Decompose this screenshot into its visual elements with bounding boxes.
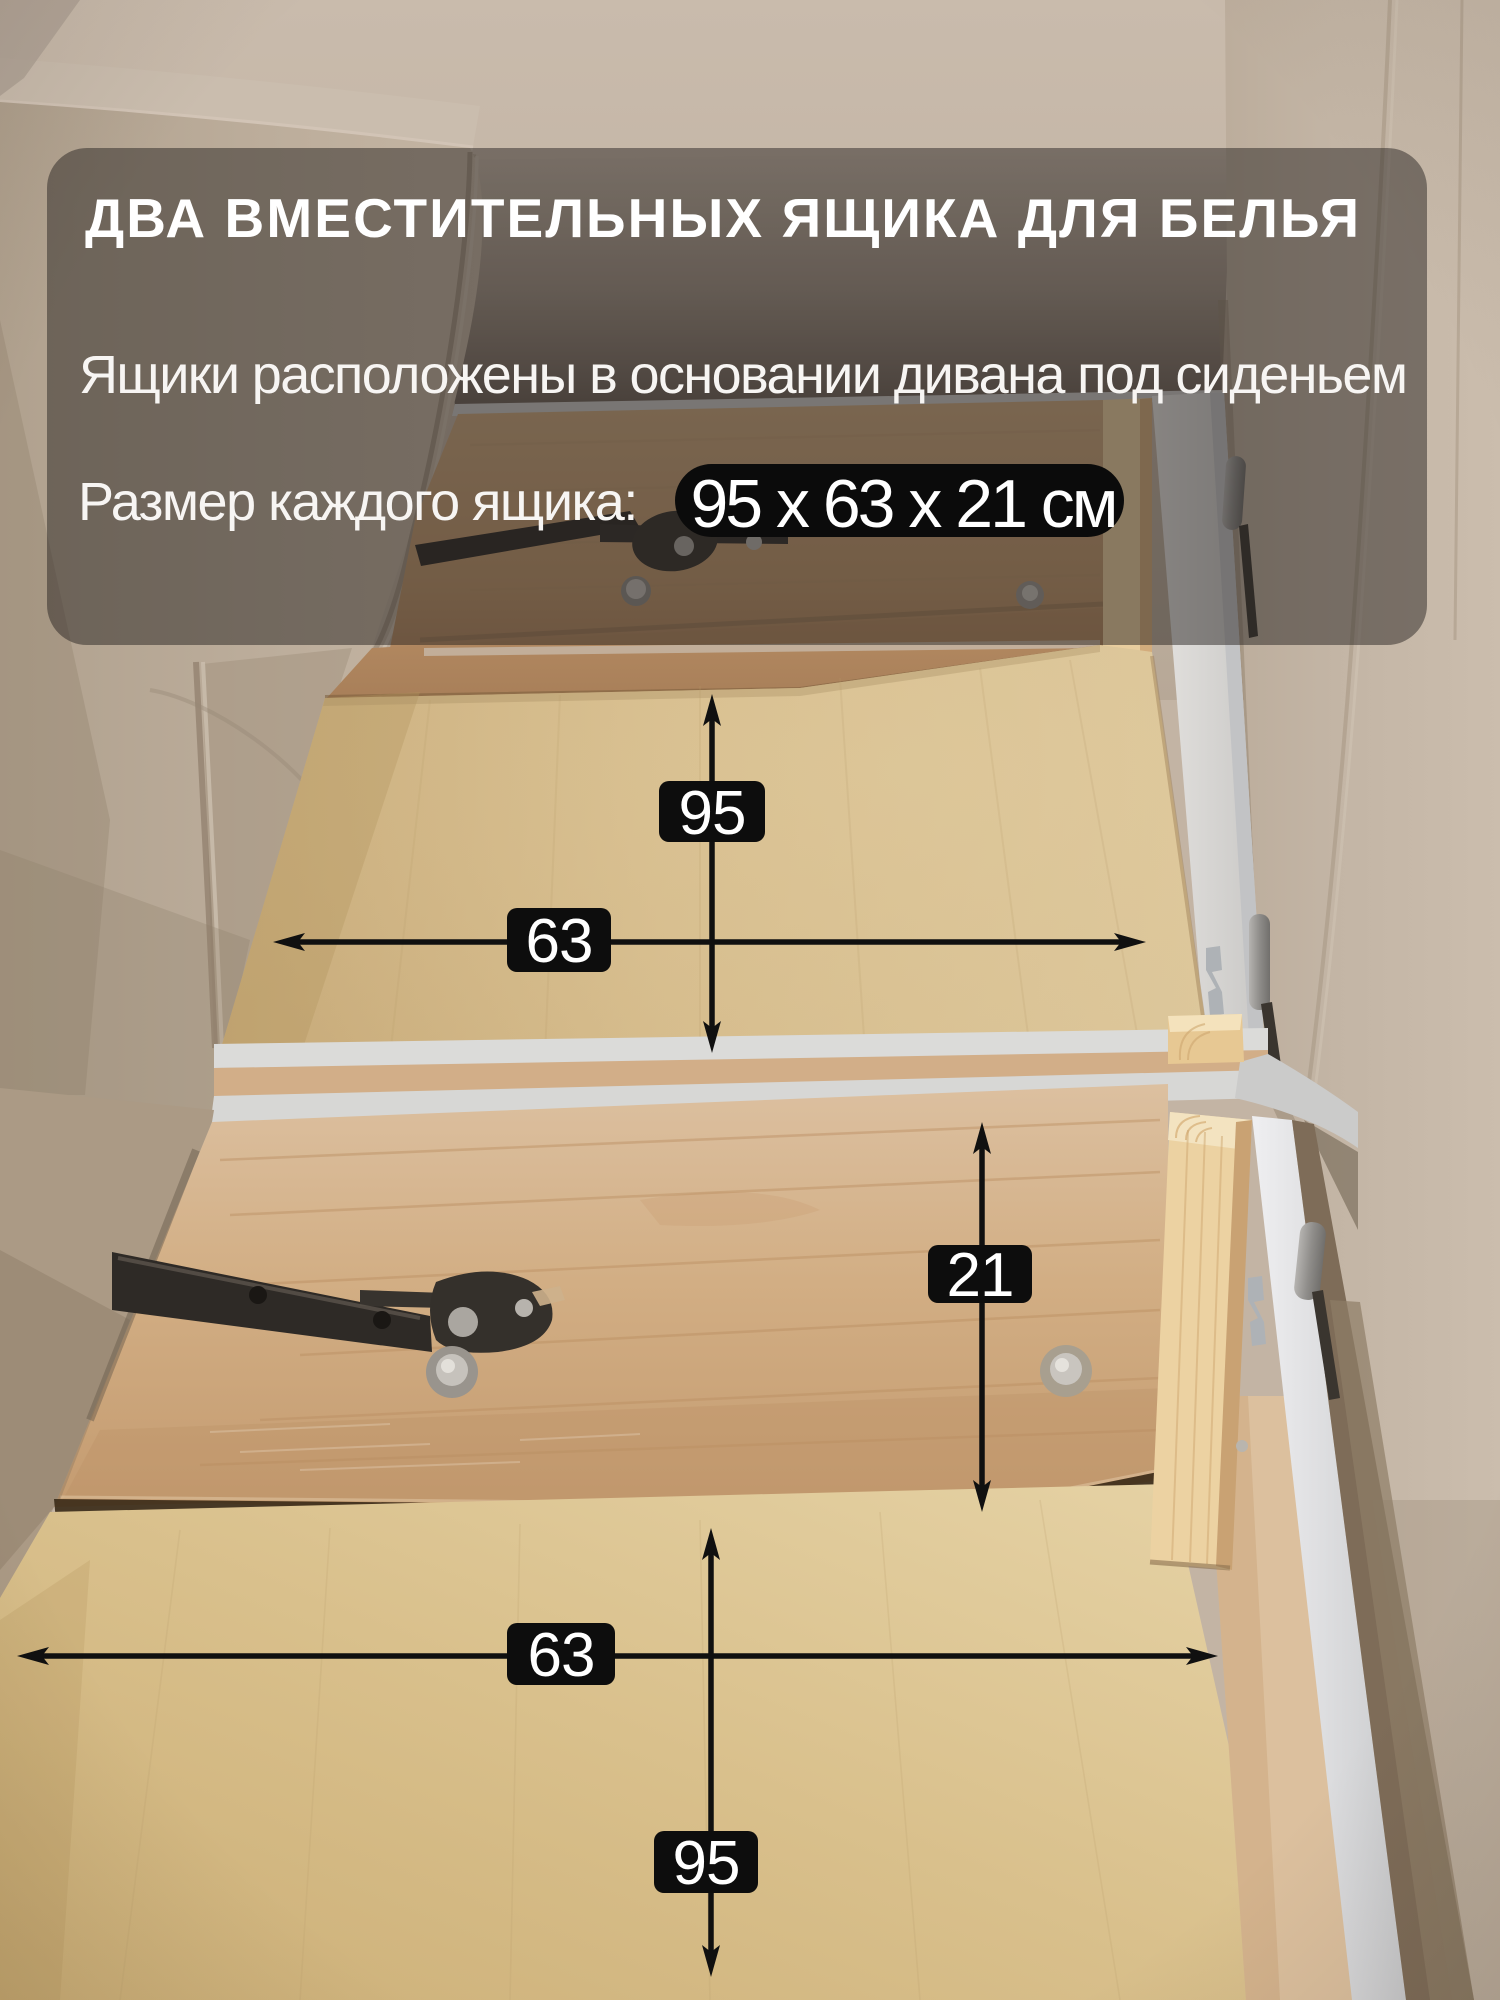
svg-text:21: 21	[947, 1241, 1014, 1310]
svg-text:ДВА ВМЕСТИТЕЛЬНЫХ ЯЩИКА ДЛЯ БЕ: ДВА ВМЕСТИТЕЛЬНЫХ ЯЩИКА ДЛЯ БЕЛЬЯ	[85, 187, 1361, 249]
svg-text:95: 95	[673, 1829, 740, 1898]
svg-text:Ящики расположены в основании: Ящики расположены в основании дивана под…	[79, 345, 1406, 405]
svg-text:95 х 63 х 21 см: 95 х 63 х 21 см	[690, 466, 1115, 542]
svg-text:Размер каждого ящика:: Размер каждого ящика:	[78, 472, 637, 532]
svg-text:95: 95	[679, 779, 746, 848]
svg-text:63: 63	[526, 907, 593, 976]
svg-text:63: 63	[528, 1621, 595, 1690]
